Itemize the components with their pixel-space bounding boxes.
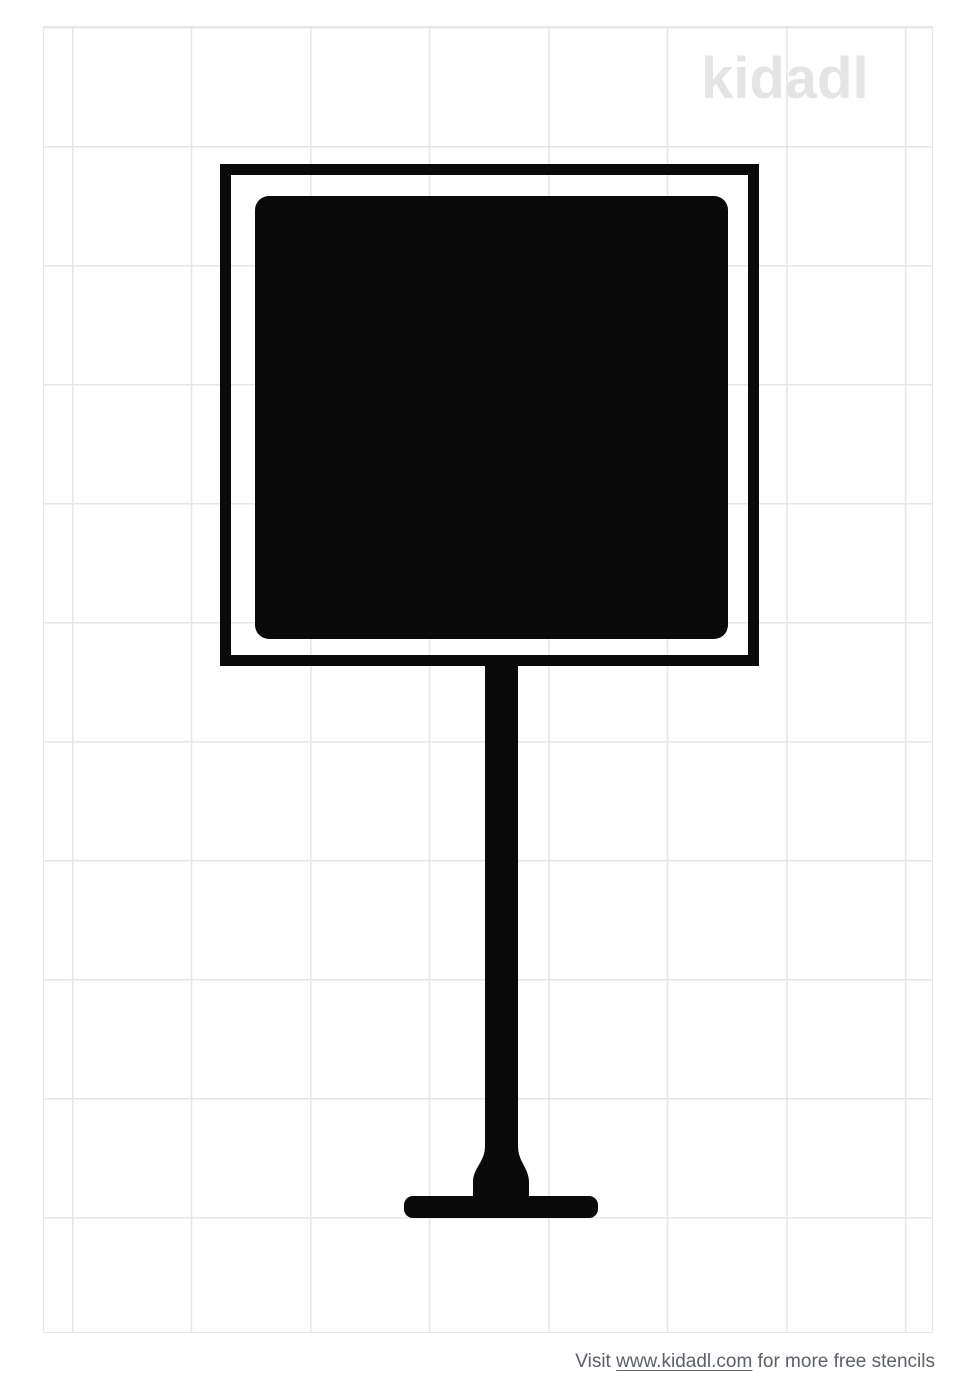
footer-credit-suffix: for more free stencils <box>752 1351 935 1372</box>
footer-credit: Visit www.kidadl.com for more free stenc… <box>575 1350 935 1375</box>
sign-panel <box>255 196 728 639</box>
stencil-page: kidadl Visit www.kidadl.com for more fre… <box>0 0 980 1389</box>
kidadl-link[interactable]: www.kidadl.com <box>616 1351 752 1372</box>
sign-base <box>404 1196 598 1218</box>
square-sign-stencil-image <box>0 0 980 1389</box>
footer-credit-prefix: Visit <box>575 1351 616 1372</box>
sign-post <box>485 656 518 1158</box>
